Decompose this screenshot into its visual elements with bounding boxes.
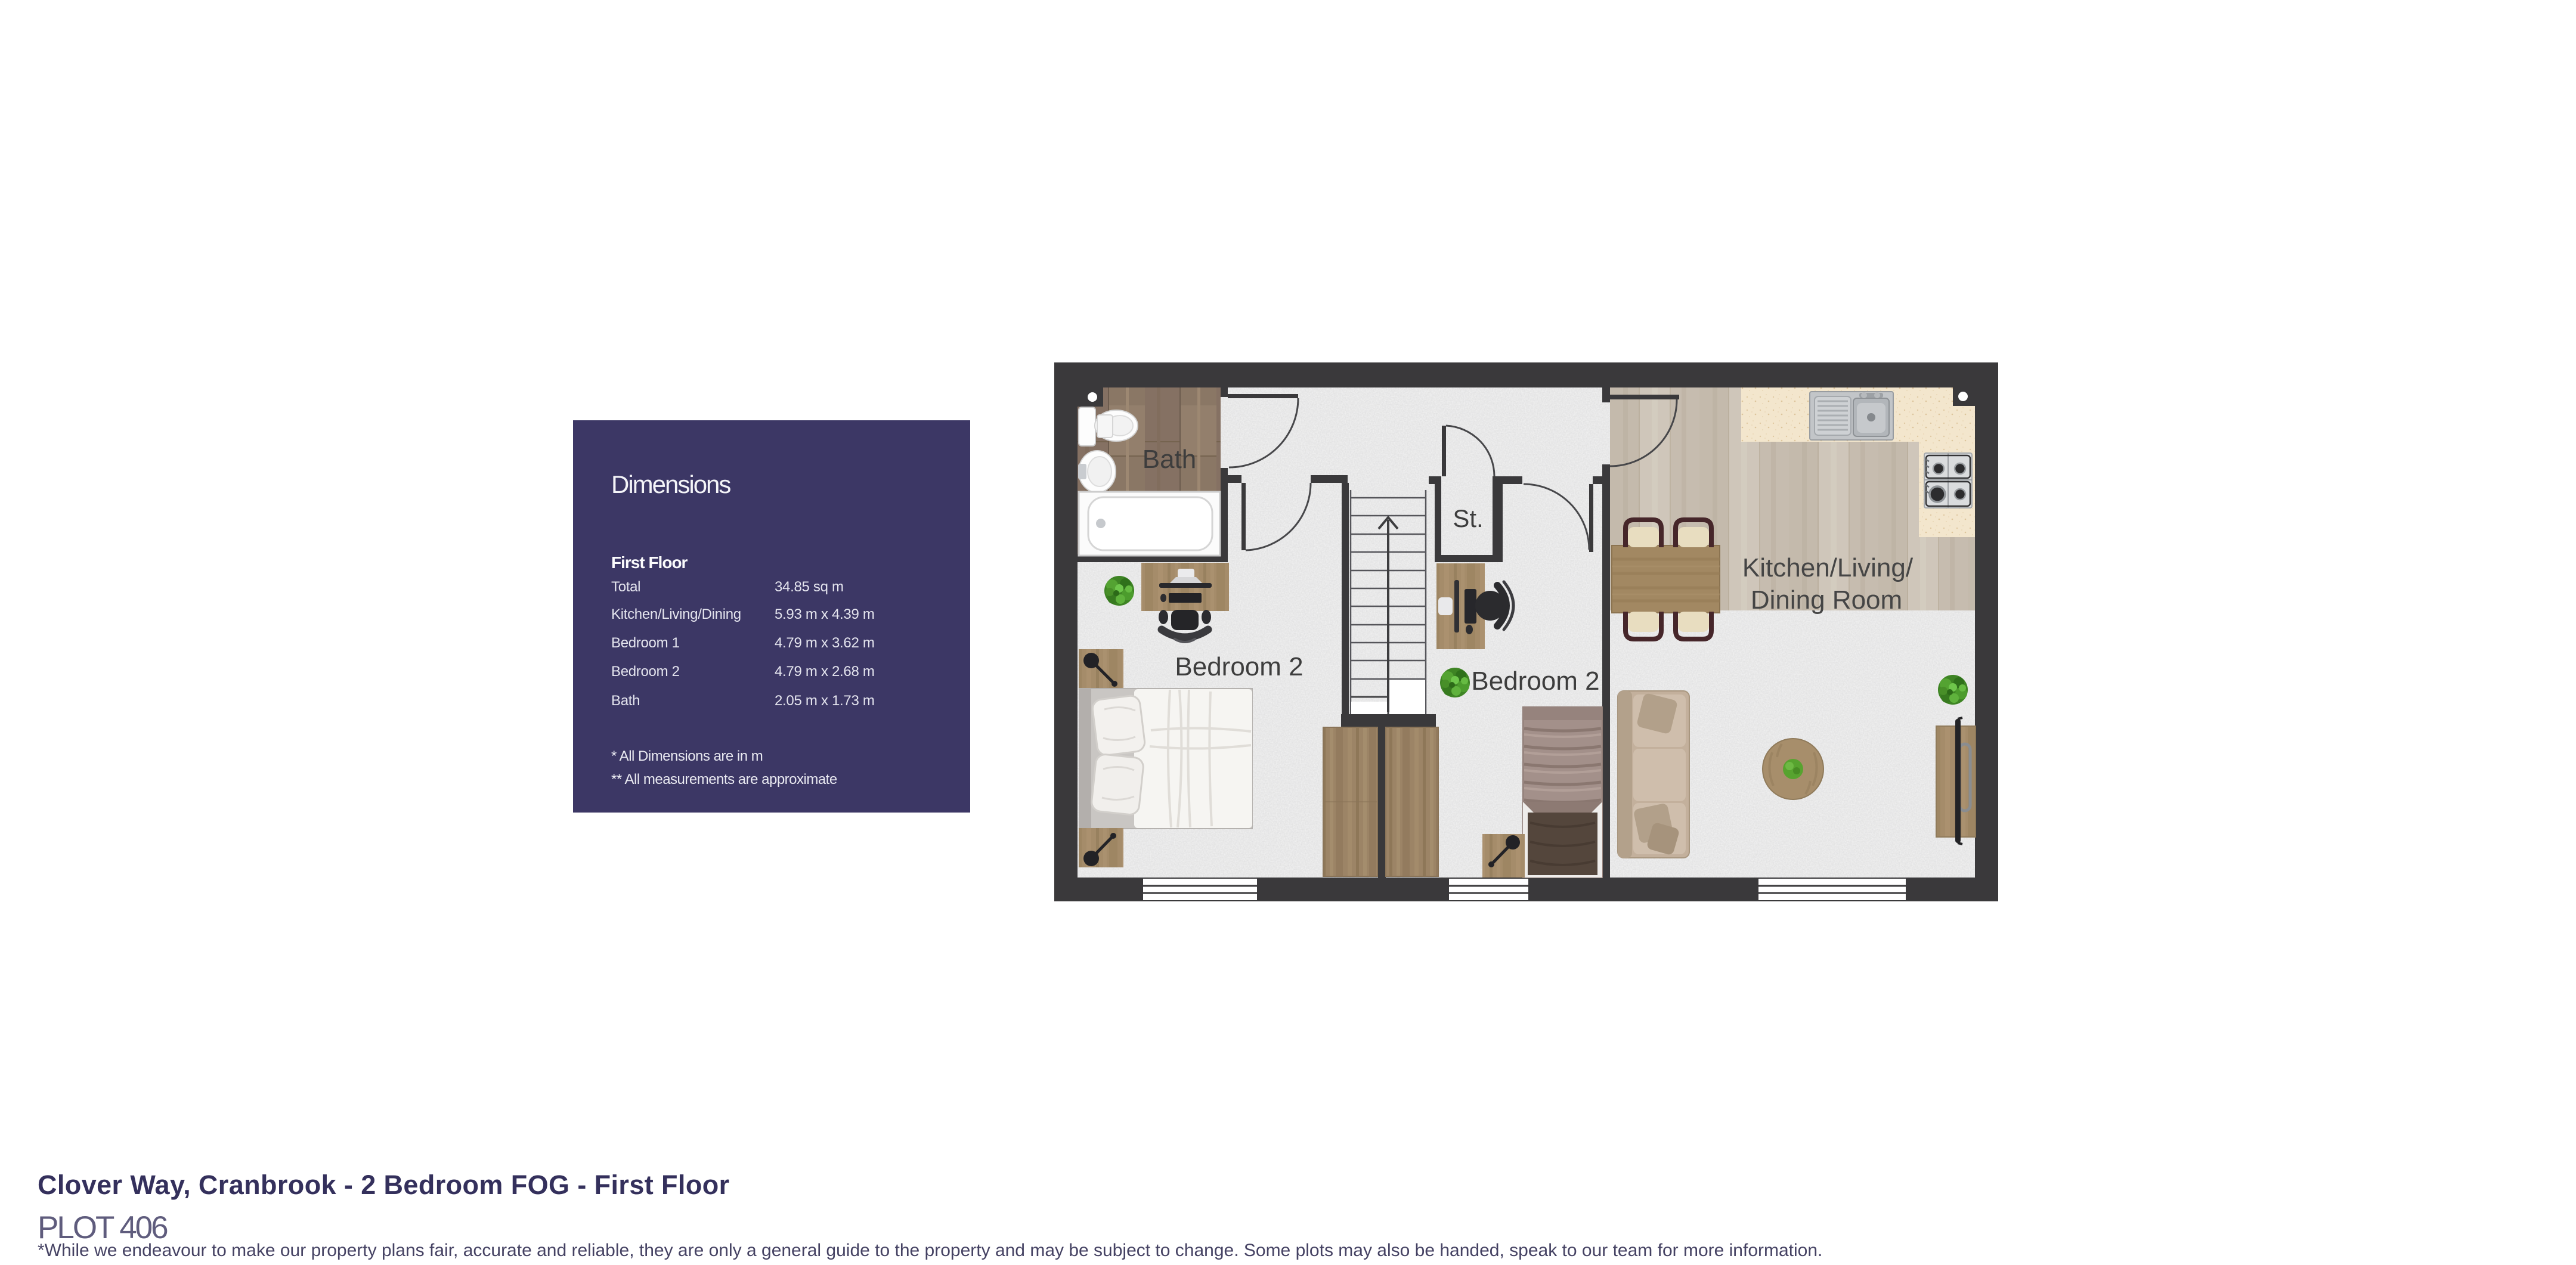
svg-text:Bath: Bath <box>1143 445 1197 474</box>
svg-text:St.: St. <box>1453 504 1483 532</box>
svg-text:Bedroom 2: Bedroom 2 <box>1175 652 1303 681</box>
svg-text:Kitchen/Living/: Kitchen/Living/ <box>1742 553 1914 582</box>
svg-text:Dining Room: Dining Room <box>1751 585 1902 615</box>
svg-text:Bedroom 2: Bedroom 2 <box>1471 666 1599 696</box>
